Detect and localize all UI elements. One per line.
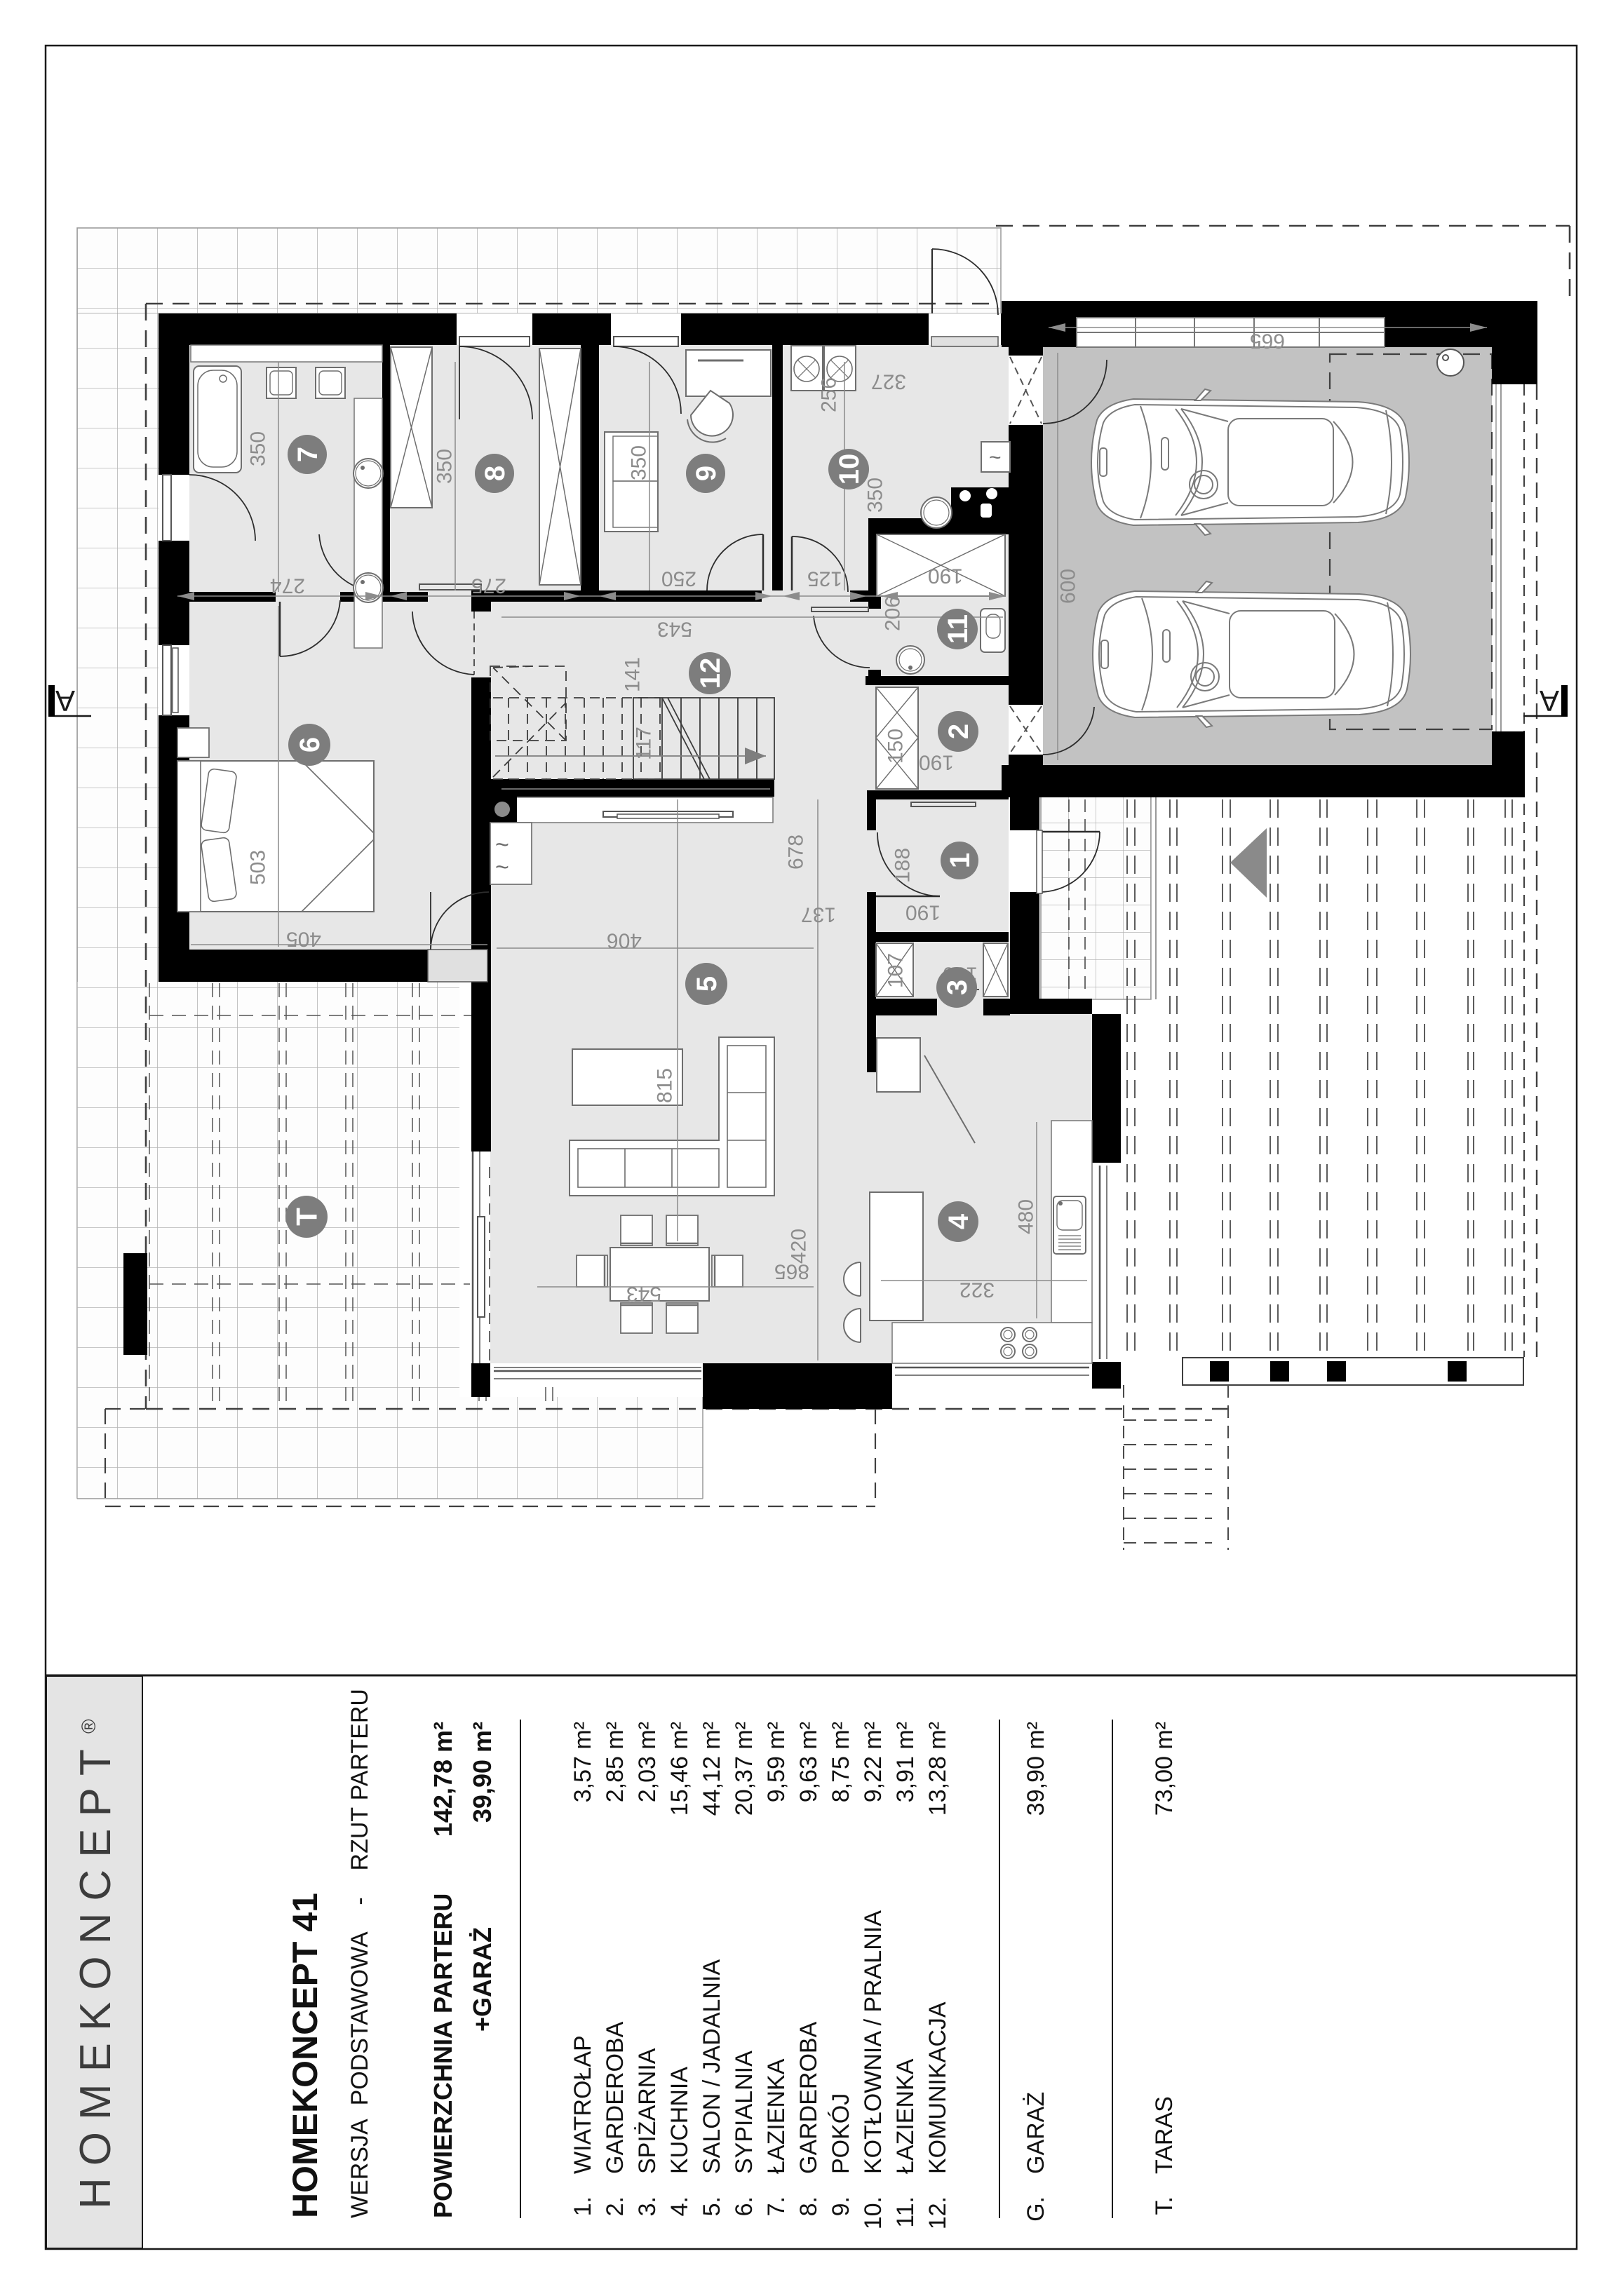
svg-text:~: ~: [495, 854, 509, 881]
svg-text:20,37 m²: 20,37 m²: [731, 1722, 757, 1816]
svg-text:ŁAZIENKA: ŁAZIENKA: [892, 2058, 919, 2174]
svg-text:2.: 2.: [602, 2196, 628, 2216]
svg-text:~: ~: [989, 446, 1002, 469]
svg-text:HOMEKONCEPT 41: HOMEKONCEPT 41: [285, 1893, 325, 2218]
svg-text:350: 350: [433, 449, 457, 484]
svg-text:A: A: [1540, 684, 1559, 717]
svg-text:1: 1: [945, 853, 976, 868]
svg-text:350: 350: [247, 431, 270, 466]
svg-text:190: 190: [919, 751, 954, 774]
svg-text:39,90 m²: 39,90 m²: [468, 1722, 497, 1823]
svg-text:73,00 m²: 73,00 m²: [1151, 1722, 1178, 1816]
svg-text:8.: 8.: [795, 2196, 822, 2216]
svg-text:7.: 7.: [763, 2196, 790, 2216]
svg-text:T: T: [290, 1208, 323, 1226]
svg-text:POKÓJ: POKÓJ: [828, 2093, 854, 2174]
svg-text:HOMEKONCEPT: HOMEKONCEPT: [72, 1737, 120, 2209]
svg-text:2: 2: [943, 724, 974, 739]
svg-text:SPIŻARNIA: SPIŻARNIA: [634, 2048, 661, 2174]
svg-text:322: 322: [959, 1278, 995, 1302]
svg-text:ŁAZIENKA: ŁAZIENKA: [763, 2058, 790, 2174]
svg-text:11: 11: [943, 614, 974, 644]
svg-text:190: 190: [905, 901, 941, 924]
svg-text:480: 480: [1015, 1199, 1038, 1234]
svg-text:TARAS: TARAS: [1151, 2096, 1178, 2174]
svg-text:GARDEROBA: GARDEROBA: [602, 2021, 628, 2174]
svg-text:6: 6: [295, 737, 325, 752]
svg-text:44,12 m²: 44,12 m²: [699, 1722, 725, 1816]
svg-text:KUCHNIA: KUCHNIA: [666, 2067, 693, 2174]
svg-text:12.: 12.: [924, 2196, 951, 2229]
svg-text:150: 150: [884, 729, 908, 764]
svg-text:10.: 10.: [860, 2196, 887, 2229]
svg-text:665: 665: [1250, 330, 1285, 353]
svg-text:7: 7: [292, 447, 323, 462]
svg-text:600: 600: [1057, 569, 1080, 604]
svg-text:KOTŁOWNIA / PRALNIA: KOTŁOWNIA / PRALNIA: [860, 1910, 887, 2174]
svg-text:9: 9: [691, 466, 722, 481]
svg-text:250: 250: [661, 567, 696, 590]
svg-text:137: 137: [801, 903, 836, 926]
svg-text:142,78 m²: 142,78 m²: [429, 1722, 457, 1837]
svg-text:1.: 1.: [570, 2196, 596, 2216]
svg-text:6.: 6.: [731, 2196, 757, 2216]
svg-text:39,90 m²: 39,90 m²: [1023, 1722, 1049, 1816]
svg-text:A: A: [55, 684, 75, 717]
svg-text:190: 190: [928, 565, 963, 588]
svg-text:SYPIALNIA: SYPIALNIA: [731, 2051, 757, 2174]
svg-text:256: 256: [818, 377, 841, 412]
svg-text:5.: 5.: [699, 2196, 725, 2216]
svg-text:5: 5: [692, 976, 722, 992]
svg-text:678: 678: [785, 835, 808, 870]
svg-text:107: 107: [884, 953, 908, 988]
svg-text:503: 503: [247, 850, 270, 885]
svg-text:543: 543: [657, 618, 692, 641]
svg-text:3,91 m²: 3,91 m²: [892, 1722, 919, 1802]
svg-text:9,22 m²: 9,22 m²: [860, 1722, 887, 1802]
svg-text:4: 4: [943, 1213, 974, 1229]
svg-text:206: 206: [882, 596, 905, 631]
svg-text:405: 405: [286, 928, 321, 951]
svg-text:865: 865: [774, 1260, 809, 1283]
svg-text:15,46 m²: 15,46 m²: [666, 1722, 693, 1816]
svg-text:3.: 3.: [634, 2196, 661, 2216]
svg-text:10: 10: [834, 454, 865, 485]
svg-text:420: 420: [788, 1229, 811, 1264]
svg-text:®: ®: [78, 1719, 100, 1734]
svg-text:406: 406: [607, 929, 642, 952]
svg-text:13,28 m²: 13,28 m²: [924, 1722, 951, 1816]
svg-text:GARDEROBA: GARDEROBA: [795, 2021, 822, 2174]
svg-text:+GARAŻ: +GARAŻ: [468, 1927, 497, 2032]
svg-text:117: 117: [633, 727, 656, 760]
svg-text:543: 543: [626, 1283, 661, 1306]
svg-text:350: 350: [628, 445, 651, 480]
svg-text:G.: G.: [1023, 2196, 1049, 2222]
svg-text:275: 275: [471, 574, 506, 597]
svg-text:141: 141: [621, 657, 645, 692]
svg-text:9.: 9.: [828, 2196, 854, 2216]
svg-text:SALON / JADALNIA: SALON / JADALNIA: [699, 1959, 725, 2174]
svg-text:188: 188: [891, 848, 915, 883]
svg-text:9,63 m²: 9,63 m²: [795, 1722, 822, 1802]
svg-text:T.: T.: [1151, 2196, 1178, 2215]
svg-text:4.: 4.: [666, 2196, 693, 2216]
svg-text:WERSJA PODSTAWOWA - RZU: WERSJA PODSTAWOWA - RZUT PARTERU: [346, 1689, 373, 2218]
svg-text:815: 815: [654, 1068, 677, 1103]
svg-text:327: 327: [871, 370, 906, 393]
svg-text:350: 350: [864, 478, 887, 513]
svg-text:11.: 11.: [892, 2196, 919, 2228]
svg-text:8: 8: [480, 466, 511, 481]
svg-text:3: 3: [942, 980, 973, 995]
svg-text:9,59 m²: 9,59 m²: [763, 1722, 790, 1802]
svg-text:3,57 m²: 3,57 m²: [570, 1722, 596, 1802]
svg-text:KOMUNIKACJA: KOMUNIKACJA: [924, 2001, 951, 2174]
svg-text:274: 274: [270, 574, 305, 597]
svg-text:WIATROŁAP: WIATROŁAP: [570, 2035, 596, 2174]
svg-text:POWIERZCHNIA PARTERU: POWIERZCHNIA PARTERU: [429, 1893, 457, 2218]
svg-text:12: 12: [695, 658, 726, 689]
svg-text:2,03 m²: 2,03 m²: [634, 1722, 661, 1802]
svg-text:8,75 m²: 8,75 m²: [828, 1722, 854, 1802]
svg-text:GARAŻ: GARAŻ: [1023, 2092, 1049, 2174]
svg-text:125: 125: [807, 567, 842, 590]
svg-text:2,85 m²: 2,85 m²: [602, 1722, 628, 1802]
